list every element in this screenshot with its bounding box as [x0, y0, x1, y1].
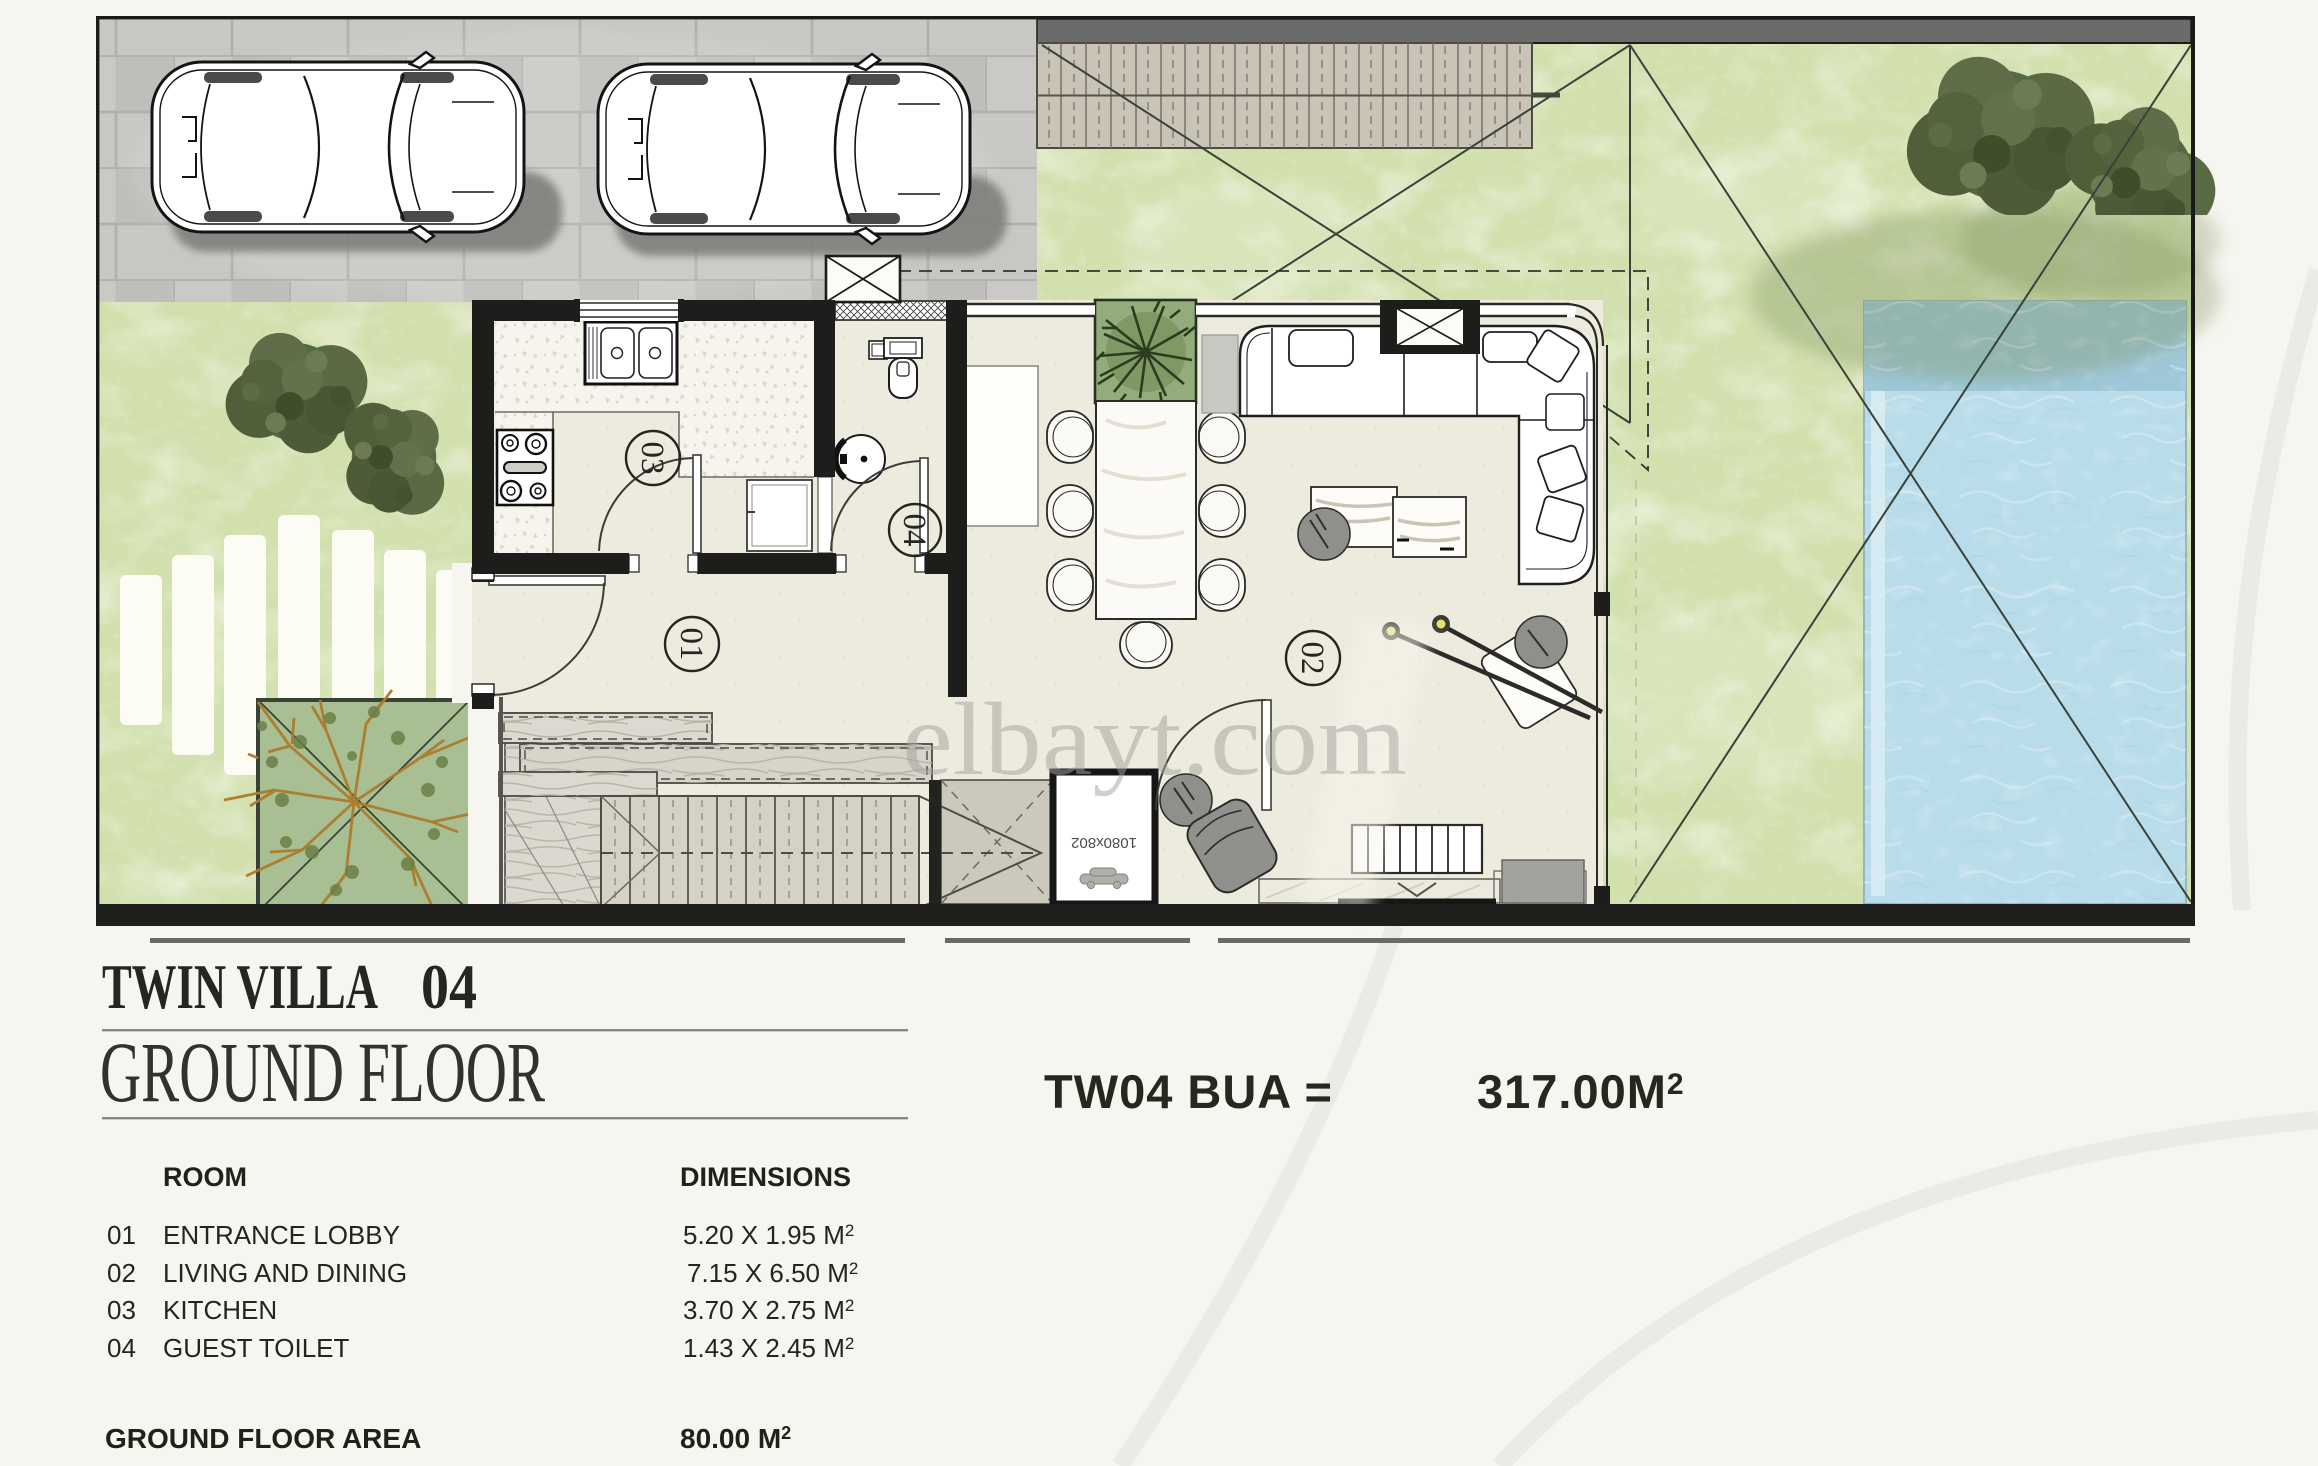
svg-text:01: 01 — [107, 1220, 136, 1250]
svg-text:GROUND FLOOR AREA: GROUND FLOOR AREA — [105, 1423, 421, 1454]
svg-text:02: 02 — [107, 1258, 136, 1288]
svg-text:KITCHEN: KITCHEN — [163, 1295, 277, 1325]
svg-text:elbayt.com: elbayt.com — [902, 682, 1407, 797]
svg-text:02: 02 — [1294, 642, 1330, 675]
svg-text:80.00 M2: 80.00 M2 — [680, 1423, 791, 1454]
svg-text:1.43 X 2.45 M2: 1.43 X 2.45 M2 — [683, 1333, 854, 1363]
svg-text:ROOM: ROOM — [163, 1162, 247, 1192]
svg-text:7.15 X 6.50 M2: 7.15 X 6.50 M2 — [687, 1258, 858, 1288]
svg-text:DIMENSIONS: DIMENSIONS — [680, 1162, 851, 1192]
svg-text:03: 03 — [634, 442, 670, 475]
svg-text:ENTRANCE LOBBY: ENTRANCE LOBBY — [163, 1220, 400, 1250]
svg-text:04: 04 — [421, 952, 477, 1022]
svg-text:317.00M2: 317.00M2 — [1477, 1065, 1685, 1118]
svg-text:01: 01 — [673, 628, 709, 661]
svg-text:03: 03 — [107, 1295, 136, 1325]
svg-text:GUEST TOILET: GUEST TOILET — [163, 1333, 350, 1363]
svg-text:LIVING AND DINING: LIVING AND DINING — [163, 1258, 407, 1288]
svg-text:04: 04 — [107, 1333, 136, 1363]
svg-text:04: 04 — [896, 514, 932, 547]
svg-text:5.20 X 1.95 M2: 5.20 X 1.95 M2 — [683, 1220, 854, 1250]
svg-text:3.70 X 2.75 M2: 3.70 X 2.75 M2 — [683, 1295, 854, 1325]
svg-text:GROUND FLOOR: GROUND FLOOR — [100, 1024, 545, 1120]
svg-text:1080x802: 1080x802 — [1071, 834, 1137, 851]
svg-text:TW04 BUA =: TW04 BUA = — [1044, 1065, 1333, 1118]
svg-text:TWIN VILLA: TWIN VILLA — [102, 952, 378, 1022]
